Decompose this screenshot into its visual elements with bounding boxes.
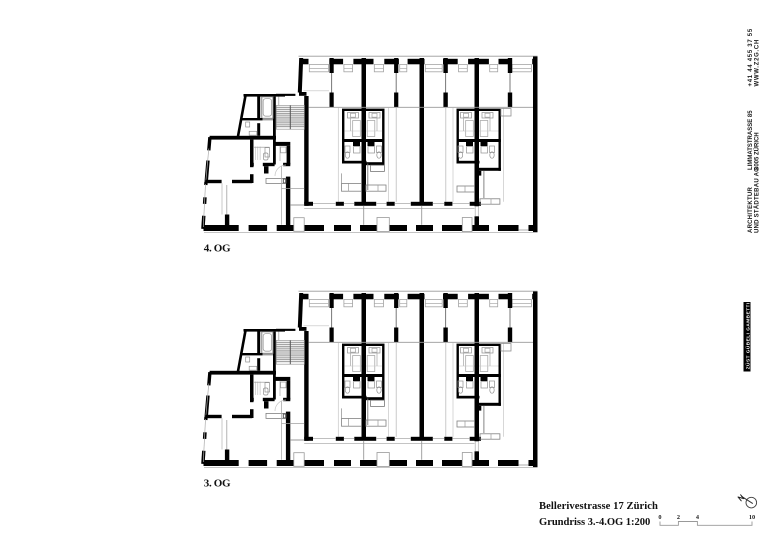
svg-text:0: 0 (658, 514, 661, 521)
svg-text:WWW.Z2G.CH: WWW.Z2G.CH (755, 39, 761, 87)
svg-text:Grundriss 3.-4.OG 1:200: Grundriss 3.-4.OG 1:200 (539, 517, 650, 528)
svg-text:ZÜST GÜBELI GAMBETTI: ZÜST GÜBELI GAMBETTI (744, 302, 750, 369)
svg-text:3. OG: 3. OG (204, 477, 231, 489)
svg-text:4. OG: 4. OG (204, 242, 231, 254)
svg-text:ARCHITEKTUR: ARCHITEKTUR (748, 187, 754, 233)
svg-text:2: 2 (677, 514, 680, 521)
svg-text:LIMMATSTRASSE 85: LIMMATSTRASSE 85 (748, 110, 754, 170)
svg-text:10: 10 (749, 514, 755, 521)
svg-text:UND STÄDTEBAU AG: UND STÄDTEBAU AG (754, 167, 761, 233)
svg-text:Bellerivestrasse 17 Zürich: Bellerivestrasse 17 Zürich (539, 501, 658, 512)
svg-text:8005 ZÜRICH: 8005 ZÜRICH (754, 132, 761, 170)
svg-text:+41 44 455 37 55: +41 44 455 37 55 (748, 28, 754, 86)
